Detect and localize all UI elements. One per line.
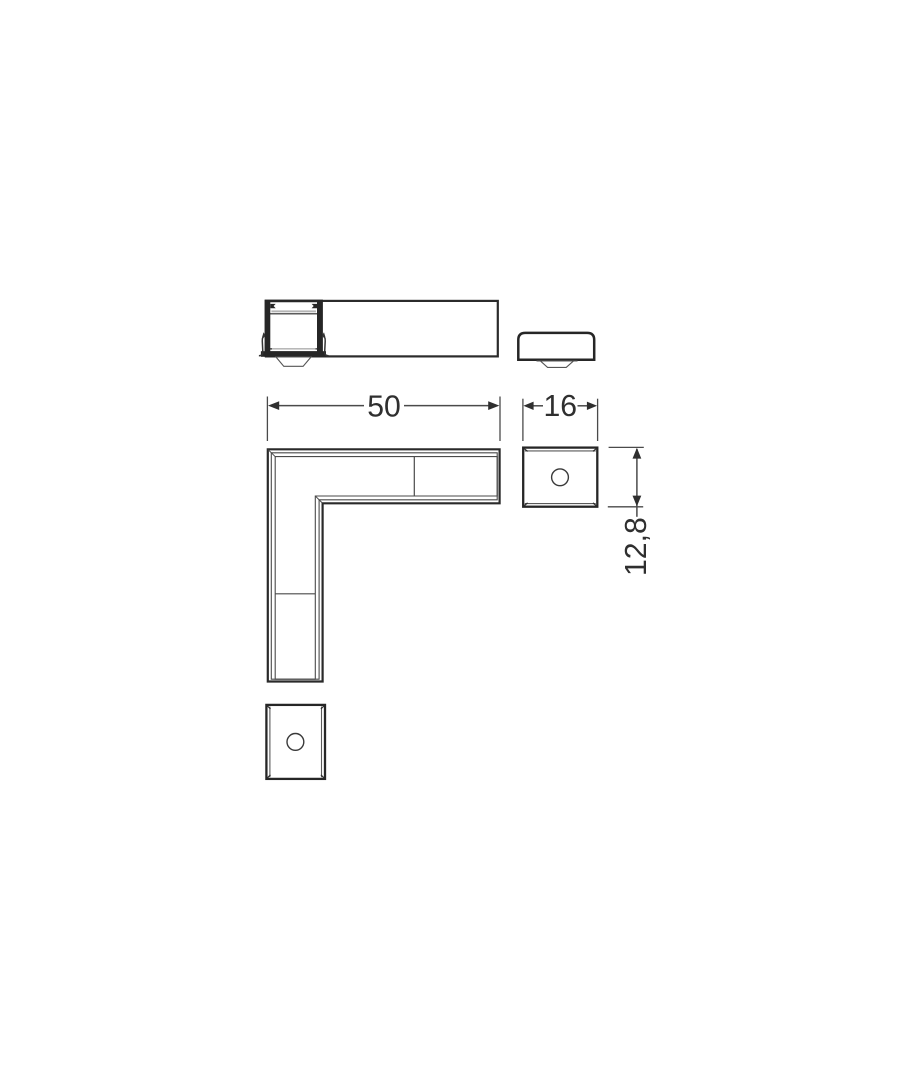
svg-text:50: 50: [367, 390, 401, 423]
svg-text:16: 16: [544, 390, 578, 423]
svg-text:12,8: 12,8: [620, 517, 653, 576]
